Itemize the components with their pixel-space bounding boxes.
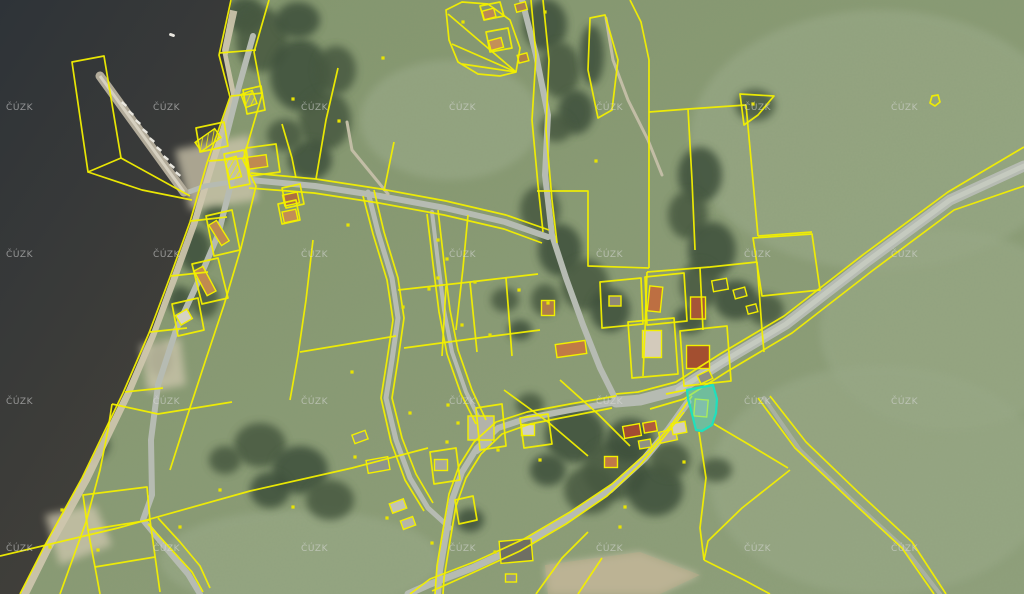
parcel-marker-dot	[543, 10, 546, 13]
parcel-marker-dot	[456, 421, 459, 424]
parcel-marker-dot	[427, 287, 430, 290]
cuzk-watermark: ČÚZK	[6, 101, 34, 113]
tree-cluster	[530, 454, 566, 486]
building-footprint	[687, 346, 710, 369]
building-footprint	[746, 304, 758, 314]
parcel-marker-dot	[594, 159, 597, 162]
building-footprint	[605, 457, 618, 468]
parcel-marker-dot	[48, 545, 51, 548]
building-footprint	[623, 424, 642, 439]
building-footprint	[609, 296, 621, 306]
cuzk-watermark: ČÚZK	[744, 395, 772, 407]
tree-cluster	[508, 320, 532, 340]
cuzk-watermark: ČÚZK	[744, 248, 772, 260]
parcel-marker-dot	[96, 548, 99, 551]
parcel-marker-dot	[473, 280, 476, 283]
tree-cluster	[540, 42, 580, 98]
cuzk-watermark: ČÚZK	[301, 395, 329, 407]
tree-cluster	[580, 25, 604, 85]
cuzk-watermark: ČÚZK	[449, 542, 477, 554]
building-footprint	[691, 297, 706, 319]
cuzk-watermark: ČÚZK	[153, 101, 181, 113]
parcel-marker-dot	[517, 288, 520, 291]
parcel-marker-dot	[381, 56, 384, 59]
parcel-marker-dot	[546, 301, 549, 304]
parcel-marker-dot	[445, 440, 448, 443]
cuzk-watermark: ČÚZK	[301, 101, 329, 113]
cuzk-watermark: ČÚZK	[153, 542, 181, 554]
parcel-marker-dot	[436, 276, 439, 279]
parcel-marker-dot	[385, 516, 388, 519]
cuzk-watermark: ČÚZK	[449, 101, 477, 113]
parcel-marker-dot	[618, 525, 621, 528]
cuzk-watermark: ČÚZK	[596, 395, 624, 407]
parcel-marker-dot	[496, 448, 499, 451]
cuzk-watermark: ČÚZK	[744, 101, 772, 113]
cuzk-watermark: ČÚZK	[891, 395, 919, 407]
cuzk-watermark: ČÚZK	[596, 542, 624, 554]
parcel-marker-dot	[291, 97, 294, 100]
cuzk-watermark: ČÚZK	[153, 395, 181, 407]
parcel-marker-dot	[60, 508, 63, 511]
cuzk-watermark: ČÚZK	[744, 542, 772, 554]
tree-cluster	[306, 480, 354, 520]
cuzk-watermark: ČÚZK	[596, 101, 624, 113]
parcel-marker-dot	[346, 223, 349, 226]
building-footprint	[647, 286, 663, 312]
cuzk-watermark: ČÚZK	[891, 542, 919, 554]
parcel-marker-dot	[337, 119, 340, 122]
parcel-marker-dot	[538, 458, 541, 461]
parcel-marker-dot	[350, 370, 353, 373]
cuzk-watermark: ČÚZK	[6, 248, 34, 260]
cuzk-watermark: ČÚZK	[6, 542, 34, 554]
building-footprint	[435, 460, 448, 471]
parcel-marker-dot	[623, 505, 626, 508]
map-canvas[interactable]: ČÚZKČÚZKČÚZKČÚZKČÚZKČÚZKČÚZKČÚZKČÚZKČÚZK…	[0, 0, 1024, 594]
building-footprint	[506, 574, 517, 582]
building-footprint	[638, 439, 651, 449]
tree-cluster	[316, 46, 356, 94]
cuzk-watermark: ČÚZK	[6, 395, 34, 407]
building-footprint	[671, 421, 687, 434]
building-footprint	[712, 278, 729, 291]
cuzk-watermark: ČÚZK	[596, 248, 624, 260]
parcel-marker-dot	[408, 411, 411, 414]
cuzk-watermark: ČÚZK	[153, 248, 181, 260]
cuzk-watermark: ČÚZK	[301, 542, 329, 554]
parcel-marker-dot	[493, 550, 496, 553]
tree-cluster	[456, 508, 484, 532]
cuzk-watermark: ČÚZK	[891, 101, 919, 113]
parcel-marker-dot	[178, 525, 181, 528]
building-footprint	[643, 421, 658, 433]
cuzk-watermark: ČÚZK	[449, 395, 477, 407]
orthophoto-cadastral-map[interactable]: ČÚZKČÚZKČÚZKČÚZKČÚZKČÚZKČÚZKČÚZKČÚZKČÚZK…	[0, 0, 1024, 594]
cuzk-watermark: ČÚZK	[449, 248, 477, 260]
cuzk-watermark: ČÚZK	[891, 248, 919, 260]
parcel-marker-dot	[430, 541, 433, 544]
parcel-marker-dot	[353, 455, 356, 458]
cuzk-watermark: ČÚZK	[301, 248, 329, 260]
tree-cluster	[209, 446, 241, 474]
parcel-marker-dot	[291, 505, 294, 508]
tree-cluster	[491, 288, 519, 312]
parcel-marker-dot	[401, 305, 404, 308]
parcel-marker-dot	[488, 333, 491, 336]
tree-cluster	[276, 2, 320, 38]
parcel-marker-dot	[682, 460, 685, 463]
parcel-marker-dot	[461, 20, 464, 23]
parcel-marker-dot	[218, 488, 221, 491]
parcel-marker-dot	[460, 323, 463, 326]
parcel-marker-dot	[436, 238, 439, 241]
